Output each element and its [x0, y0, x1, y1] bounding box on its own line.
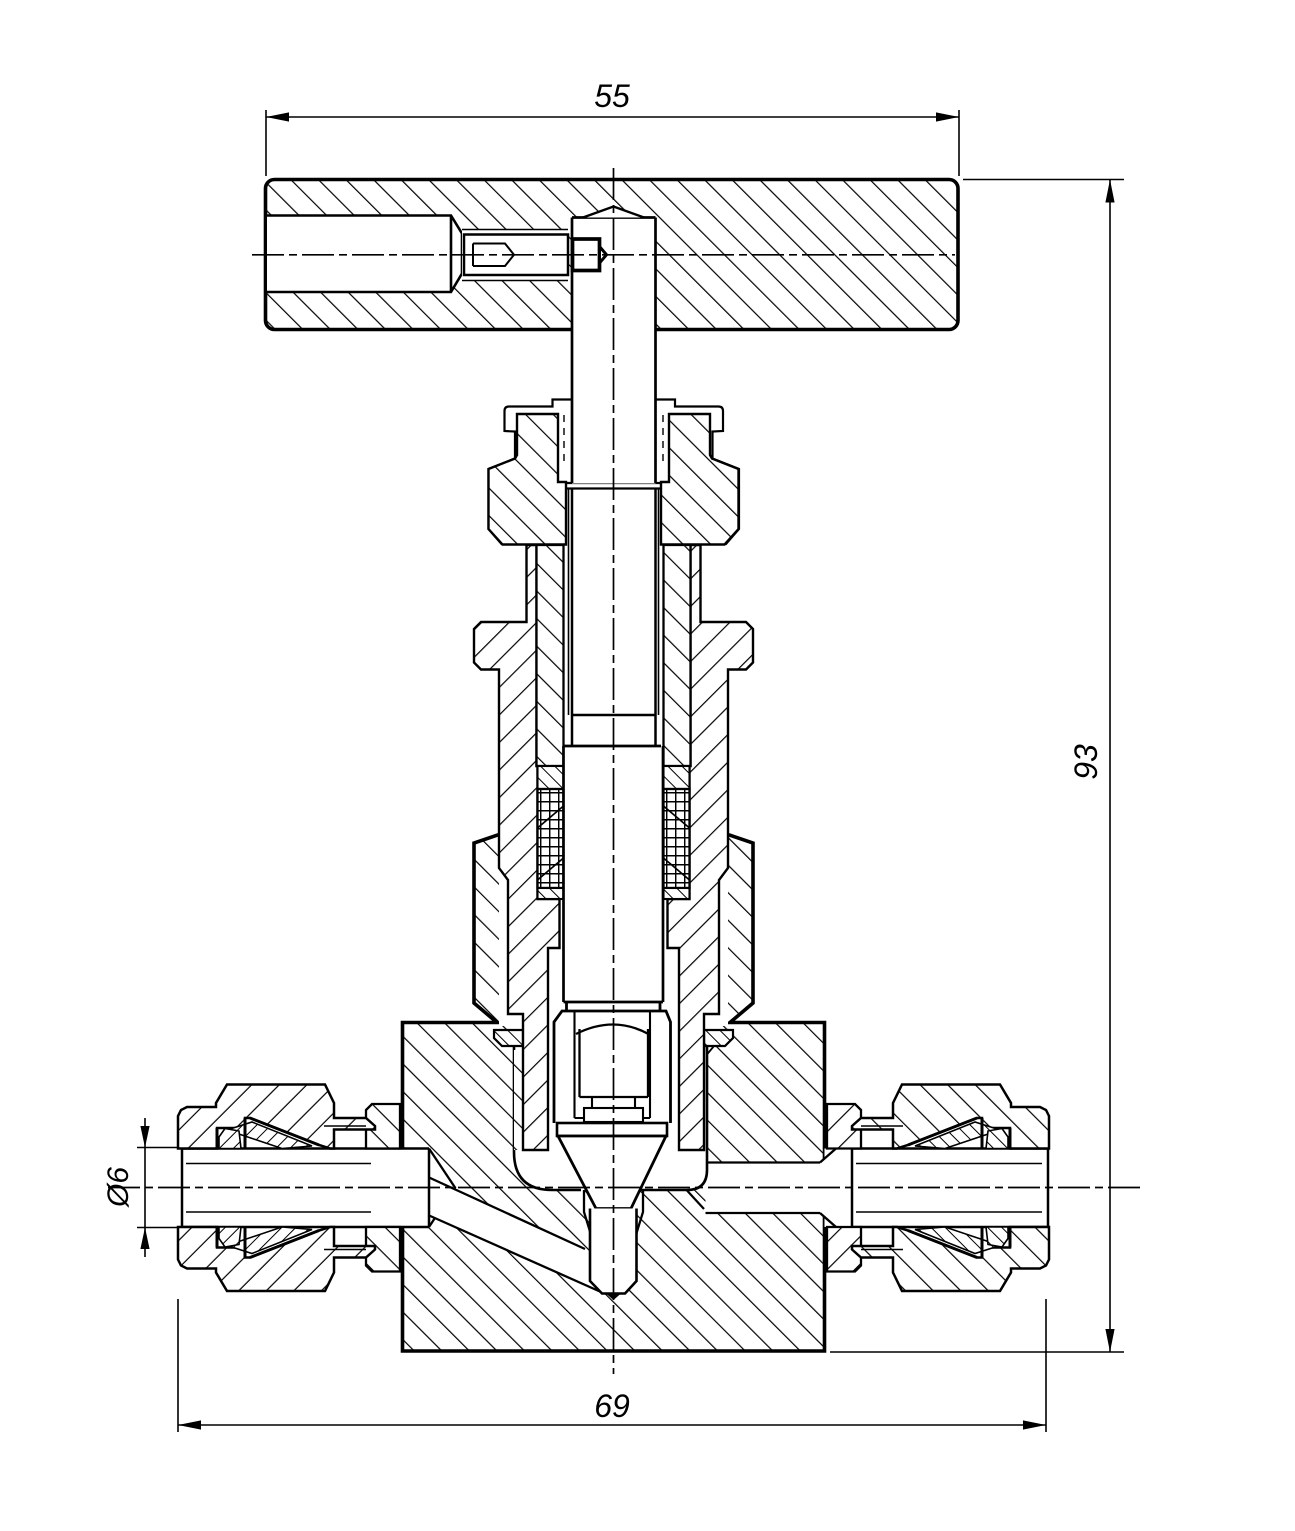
svg-text:93: 93 [1068, 744, 1104, 780]
svg-text:69: 69 [594, 1388, 630, 1424]
svg-text:55: 55 [594, 78, 630, 114]
